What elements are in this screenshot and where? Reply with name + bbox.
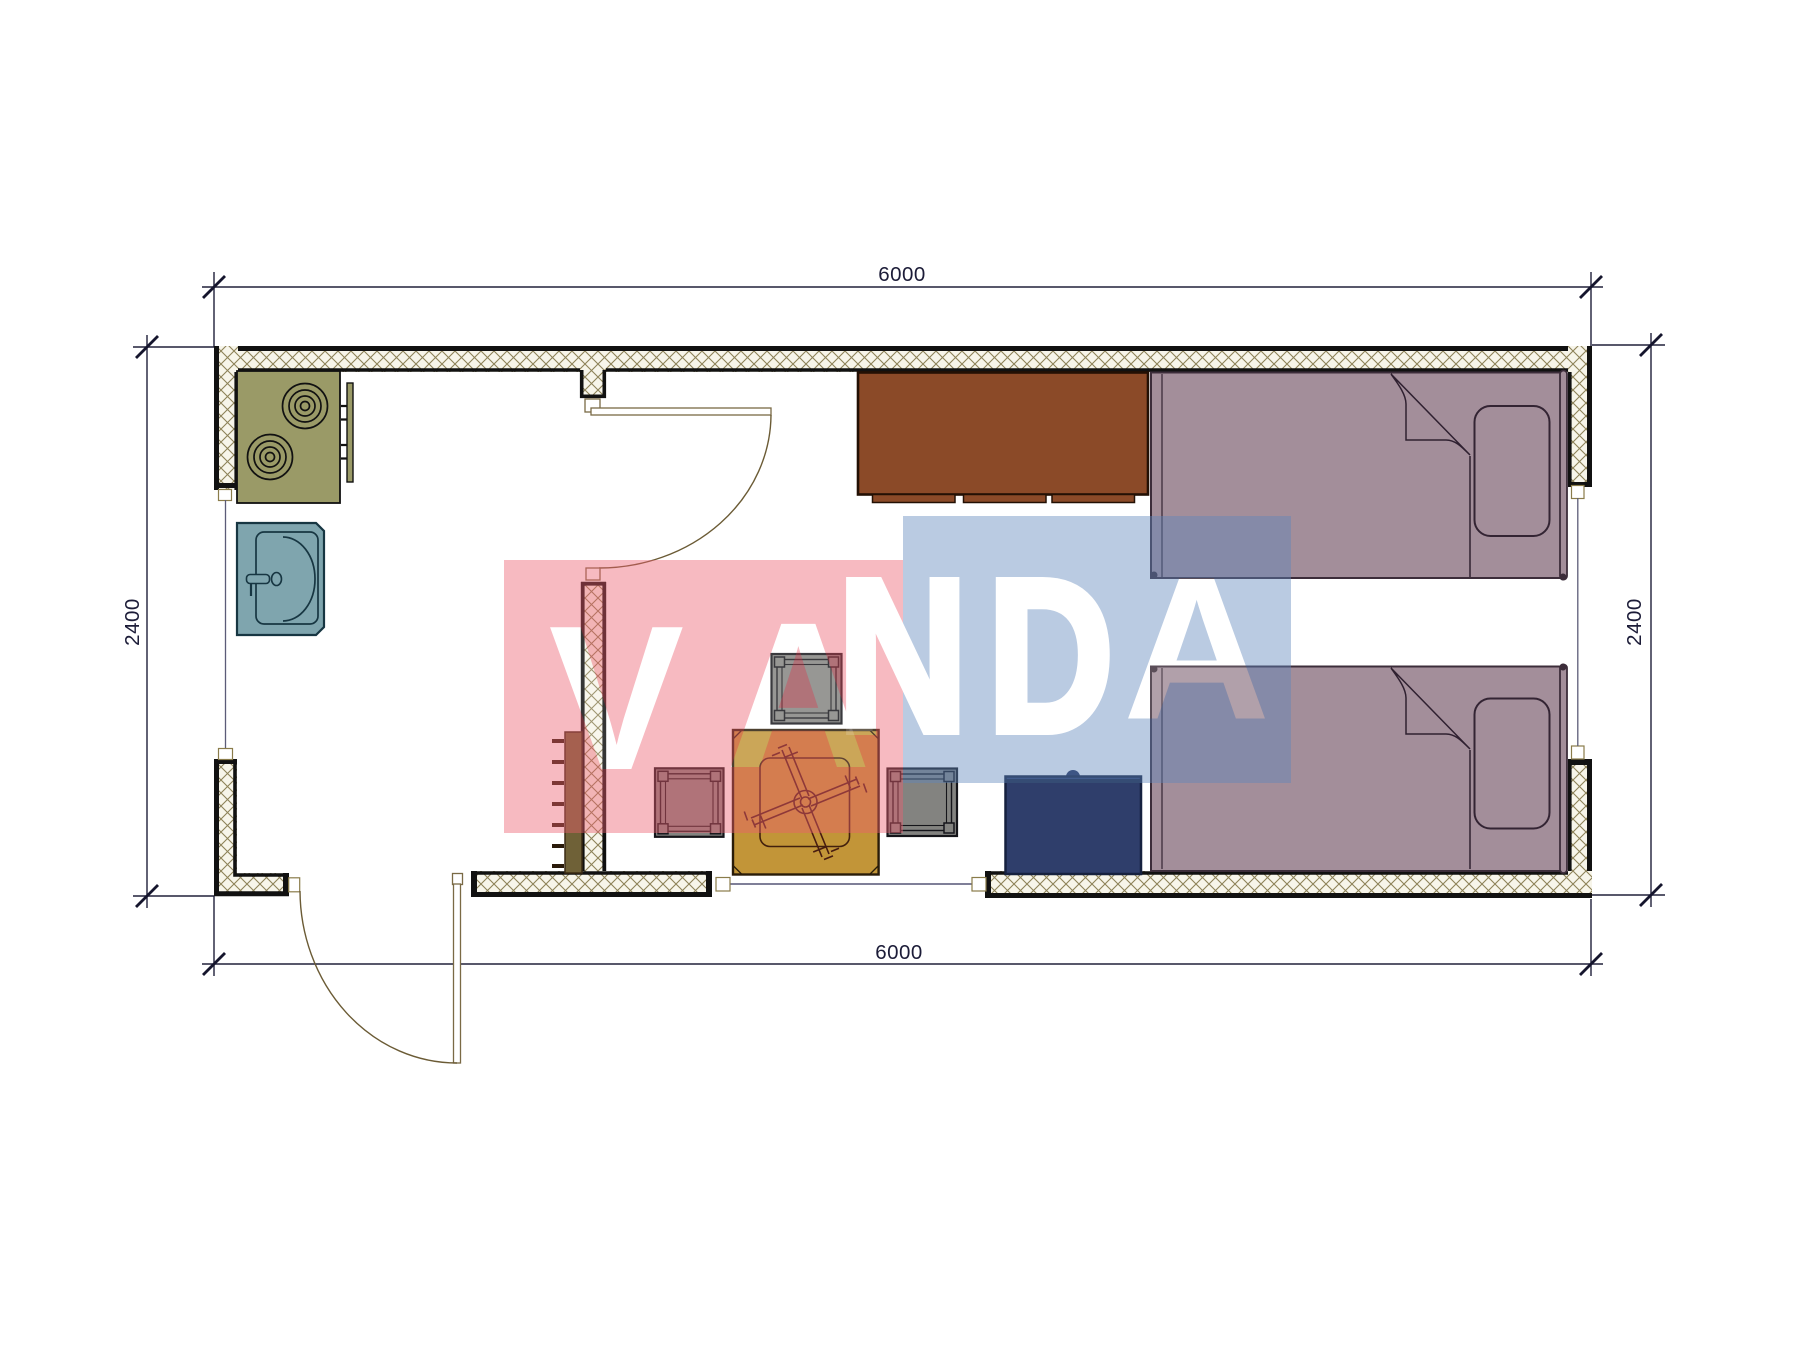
svg-text:V: V (549, 584, 684, 814)
svg-text:N: N (837, 534, 968, 778)
svg-text:A: A (1123, 535, 1270, 763)
svg-text:D: D (987, 534, 1114, 778)
